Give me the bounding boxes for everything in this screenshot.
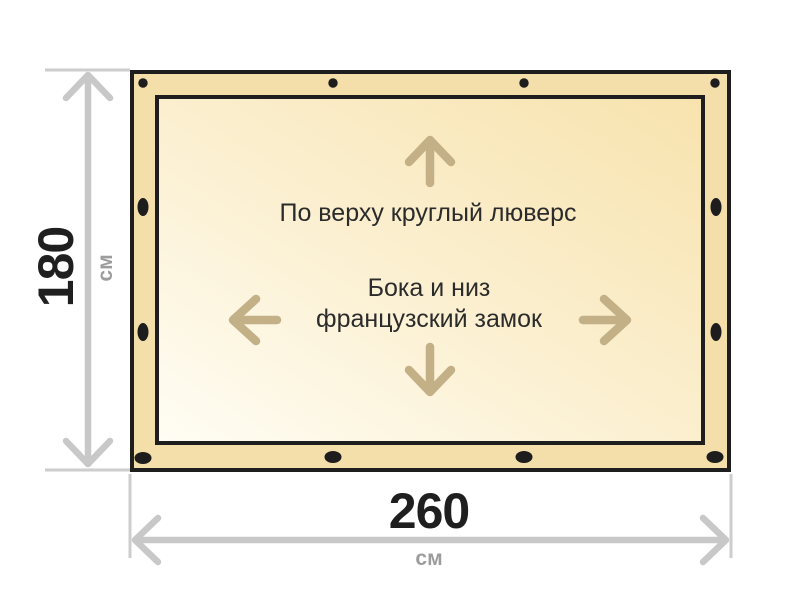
annotation-top-grommet: По верху круглый люверс	[279, 198, 576, 228]
height-value-label: 180	[27, 227, 85, 307]
grommet-dot-icon	[516, 451, 533, 463]
height-unit-label: см	[94, 254, 118, 281]
grommet-row-bottom	[135, 451, 724, 464]
grommet-dot-icon	[519, 78, 528, 87]
grommet-dot-icon	[710, 78, 719, 87]
dimension-diagram: По верху круглый люверс Бока и низ франц…	[0, 0, 800, 600]
grommet-row-top	[138, 78, 719, 87]
arrow-right-icon	[583, 299, 627, 341]
arrow-down-icon	[409, 347, 451, 392]
grommet-dot-icon	[328, 78, 337, 87]
width-unit-label: см	[415, 547, 442, 571]
annotation-sides-line1: Бока и низ	[368, 273, 491, 303]
grommet-dot-icon	[711, 198, 722, 216]
grommet-column-right	[711, 198, 722, 341]
grommet-dot-icon	[711, 323, 722, 341]
arrow-up-icon	[409, 140, 451, 183]
annotation-sides-line2: французский замок	[316, 304, 542, 334]
grommet-dot-icon	[325, 451, 342, 463]
grommet-dot-icon	[135, 452, 152, 464]
direction-arrows	[233, 140, 627, 392]
grommet-column-left	[138, 198, 149, 341]
grommet-dot-icon	[707, 451, 724, 463]
arrow-left-icon	[233, 299, 277, 341]
width-value-label: 260	[389, 482, 469, 540]
grommet-dot-icon	[138, 78, 147, 87]
grommet-dot-icon	[138, 323, 149, 341]
grommet-dot-icon	[138, 198, 149, 216]
